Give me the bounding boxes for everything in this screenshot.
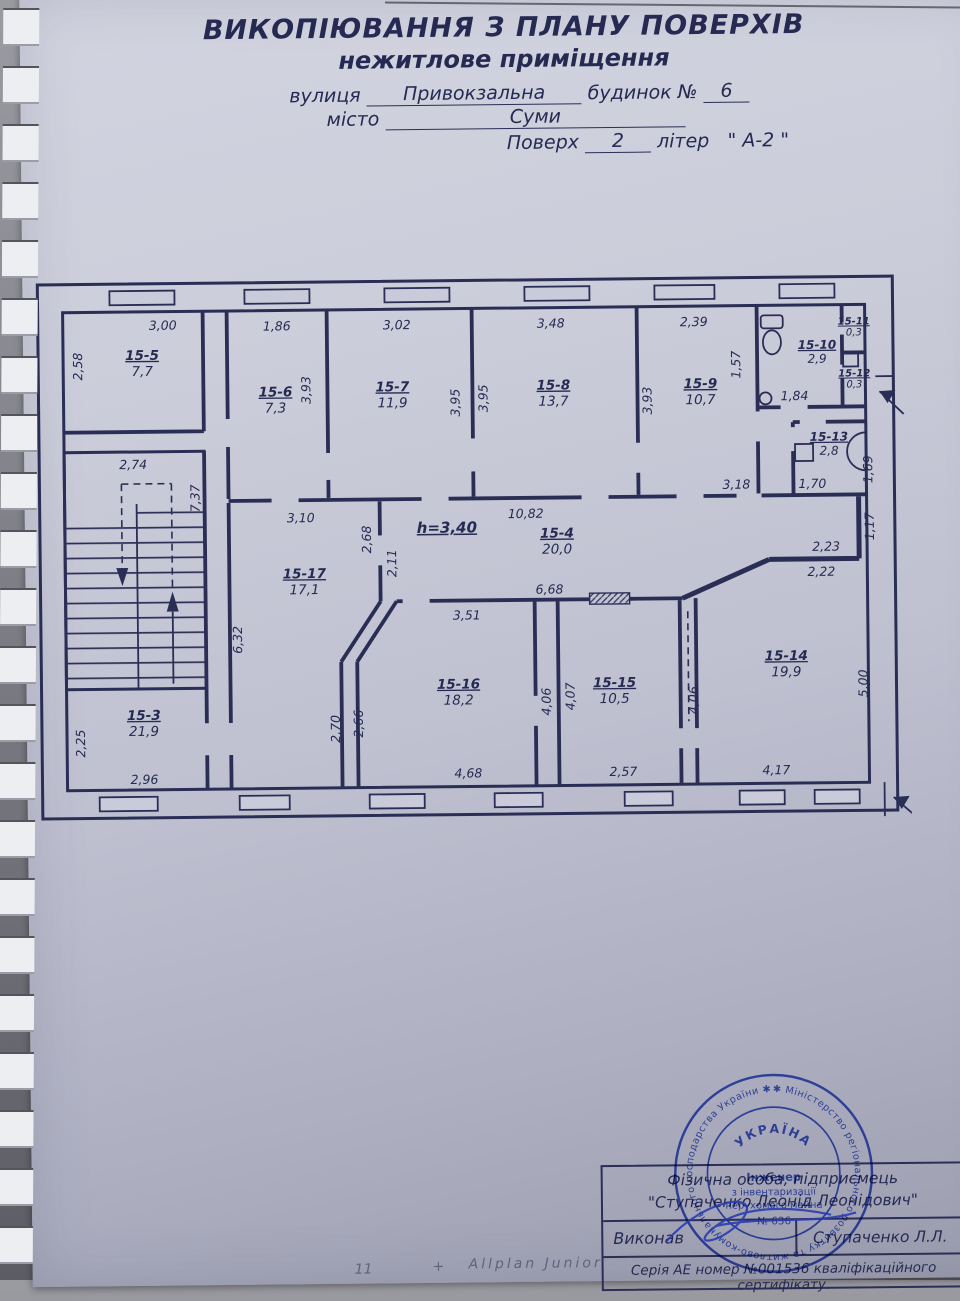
- city-label: місто: [326, 108, 379, 131]
- room-area: 13,7: [538, 393, 569, 409]
- dim: 3,95: [447, 389, 462, 417]
- dim: 2,58: [70, 353, 85, 381]
- dim: 3,93: [298, 376, 313, 404]
- exit-arrow-icon: [894, 796, 910, 809]
- seal-country: УКРАЇНА: [732, 1121, 815, 1150]
- ceiling-height-note: h=3,40: [417, 518, 477, 537]
- dim: 3,10: [287, 510, 315, 525]
- dim: 2,74: [119, 457, 147, 472]
- room-id: 15-16: [437, 676, 480, 692]
- dim: 1,69: [860, 455, 875, 483]
- room-id: 15-9: [683, 376, 717, 392]
- dim: 4,17: [762, 762, 790, 777]
- duct-shaft-2: [843, 353, 858, 366]
- street-row: вулиця Привокзальна будинок № 6: [289, 80, 749, 108]
- dim: 3,93: [639, 387, 654, 415]
- room-area: 17,1: [289, 582, 319, 598]
- dim: 3,95: [475, 384, 490, 412]
- room-area: 0,3: [846, 327, 862, 338]
- dim: 10,82: [508, 506, 544, 521]
- floor-value: 2: [585, 130, 651, 154]
- room-id: 15-15: [593, 675, 636, 691]
- dim: 2,68: [359, 526, 374, 554]
- letter-value: " А-2 ": [715, 129, 801, 152]
- room-id: 15-3: [127, 708, 161, 724]
- room-area: 2,8: [819, 444, 839, 458]
- toilet-bowl-icon: [763, 330, 781, 354]
- room-area: 7,3: [265, 400, 287, 416]
- room-area: 21,9: [129, 724, 159, 740]
- floor-label: Поверх: [507, 131, 579, 154]
- duct-shaft: [795, 444, 813, 461]
- software-watermark: Allplan Junior: [468, 1255, 602, 1272]
- dim: 2,57: [609, 764, 637, 779]
- toilet-tank-icon: [761, 315, 783, 328]
- room-id: 15-5: [125, 348, 159, 364]
- dim: 2,25: [73, 730, 88, 758]
- floor-plan: 15-5 7,7 15-6 7,3 15-7 11,9 15-8 13,7 15…: [34, 264, 912, 839]
- dim: 2,23: [812, 539, 840, 554]
- dim: 7,37: [187, 484, 202, 512]
- staircase: [64, 451, 206, 689]
- room-area: 0,3: [846, 379, 862, 390]
- room-area: 11,9: [377, 395, 407, 411]
- dim: 4,07: [562, 682, 577, 710]
- dim: 1,86: [263, 318, 291, 333]
- city-value: Суми: [385, 104, 685, 130]
- room-id: 15-17: [283, 566, 327, 582]
- room-area: 10,7: [685, 392, 716, 408]
- room-id: 15-4: [540, 525, 574, 541]
- room-id: 15-14: [765, 648, 808, 664]
- building-label: будинок №: [588, 81, 698, 104]
- room-id: 15-8: [536, 377, 570, 393]
- room-area: 20,0: [542, 541, 572, 557]
- handwritten-signature: [646, 1184, 907, 1257]
- room-id: 15-7: [375, 379, 410, 395]
- dim: 2,11: [384, 549, 399, 577]
- dim: 4,06: [539, 688, 554, 716]
- room-area: 19,9: [771, 664, 801, 680]
- dim: 3,48: [537, 315, 565, 330]
- windows-bottom: [100, 789, 860, 811]
- room-id: 15-10: [798, 338, 837, 352]
- dim: 1,84: [780, 388, 808, 403]
- dim: 1,17: [862, 512, 877, 540]
- city-row: місто Суми: [326, 104, 685, 131]
- dim: 6,68: [536, 582, 564, 597]
- dim: 2,22: [807, 564, 835, 579]
- sink-small-icon: [759, 392, 771, 404]
- room-id: 15-13: [810, 430, 849, 444]
- title-block: ВИКОПІЮВАННЯ З ПЛАНУ ПОВЕРХІВ нежитлове …: [143, 8, 864, 77]
- dim: 1,70: [798, 476, 826, 491]
- spiral-binding: [0, 0, 39, 1280]
- room-area: 18,2: [444, 692, 474, 708]
- windows-top: [109, 284, 834, 306]
- room-area: 7,7: [131, 364, 153, 380]
- letter-label: літер: [657, 130, 709, 153]
- dim: 4,68: [454, 765, 482, 780]
- room-id: 15-6: [258, 384, 292, 400]
- street-value: Привокзальна: [367, 81, 582, 106]
- dim: 3,00: [149, 318, 177, 333]
- dim: 4,06: [686, 686, 701, 714]
- dim: 6,32: [230, 626, 245, 654]
- dim: 3,02: [383, 317, 411, 332]
- dim: 3,51: [453, 607, 481, 622]
- dim: 1,57: [728, 351, 743, 379]
- page-title: ВИКОПІЮВАННЯ З ПЛАНУ ПОВЕРХІВ: [143, 8, 863, 47]
- dim: 2,96: [130, 772, 158, 787]
- room-area: 10,5: [600, 691, 630, 707]
- dim: 3,18: [722, 477, 750, 492]
- opening-hatch: [590, 593, 630, 604]
- page-content: ВИКОПІЮВАННЯ З ПЛАНУ ПОВЕРХІВ нежитлове …: [0, 0, 960, 1285]
- room-area: 2,9: [807, 352, 826, 366]
- room-id: 15-12: [838, 368, 870, 379]
- dim: 5,00: [855, 669, 870, 697]
- room-labels: 15-5 7,7 15-6 7,3 15-7 11,9 15-8 13,7 15…: [123, 316, 874, 740]
- floor-row: Поверх 2 літер " А-2 ": [507, 128, 802, 154]
- footer-note-plus: +: [433, 1259, 445, 1275]
- seal-role-1: Інженер: [746, 1170, 801, 1185]
- dim: 2,39: [680, 314, 708, 329]
- page-subtitle: нежитлове приміщення: [144, 41, 864, 77]
- dim: 2,66: [351, 710, 366, 738]
- document-paper: ВИКОПІЮВАННЯ З ПЛАНУ ПОВЕРХІВ нежитлове …: [19, 0, 960, 1287]
- building-value: 6: [703, 80, 749, 103]
- street-label: вулиця: [289, 85, 361, 108]
- dim: 2,70: [328, 715, 343, 743]
- room-id: 15-11: [838, 316, 870, 327]
- footer-note-left: 11: [355, 1262, 373, 1278]
